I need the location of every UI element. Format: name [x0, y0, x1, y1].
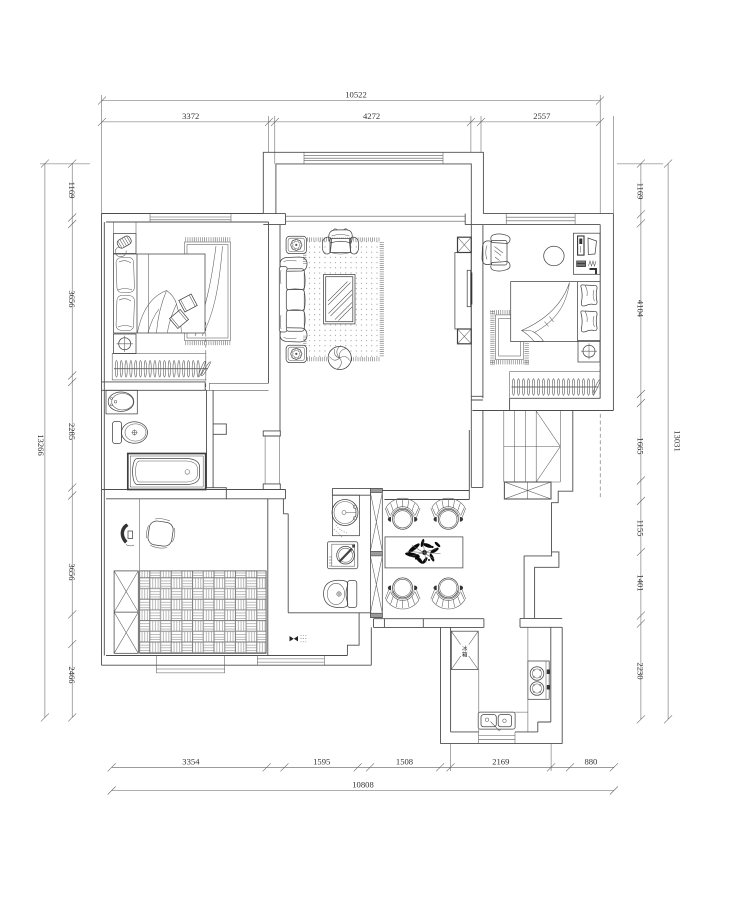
svg-text:13266: 13266 [36, 434, 46, 456]
svg-text:3656: 3656 [67, 563, 77, 581]
svg-text:4104: 4104 [636, 300, 646, 318]
svg-text:1665: 1665 [636, 437, 646, 454]
svg-text:冰: 冰 [462, 645, 468, 653]
svg-text:2169: 2169 [492, 756, 509, 766]
svg-text:10808: 10808 [352, 779, 373, 789]
svg-text:10522: 10522 [345, 90, 366, 100]
svg-text:2230: 2230 [636, 662, 646, 679]
svg-text:2466: 2466 [67, 666, 77, 684]
svg-text:箱: 箱 [462, 651, 468, 659]
svg-text:3656: 3656 [67, 290, 77, 308]
svg-text:880: 880 [584, 756, 597, 766]
svg-text:1169: 1169 [67, 182, 77, 199]
svg-text:1508: 1508 [396, 756, 413, 766]
svg-text:1169: 1169 [636, 183, 646, 200]
svg-text:3372: 3372 [182, 111, 199, 121]
svg-text:1155: 1155 [636, 520, 646, 537]
svg-text:2557: 2557 [533, 111, 551, 121]
svg-text:1401: 1401 [636, 574, 646, 591]
svg-text:3354: 3354 [182, 756, 200, 766]
svg-text:2285: 2285 [67, 423, 77, 440]
svg-text:13031: 13031 [673, 430, 683, 451]
svg-text:4272: 4272 [363, 111, 380, 121]
svg-text:1595: 1595 [313, 756, 330, 766]
